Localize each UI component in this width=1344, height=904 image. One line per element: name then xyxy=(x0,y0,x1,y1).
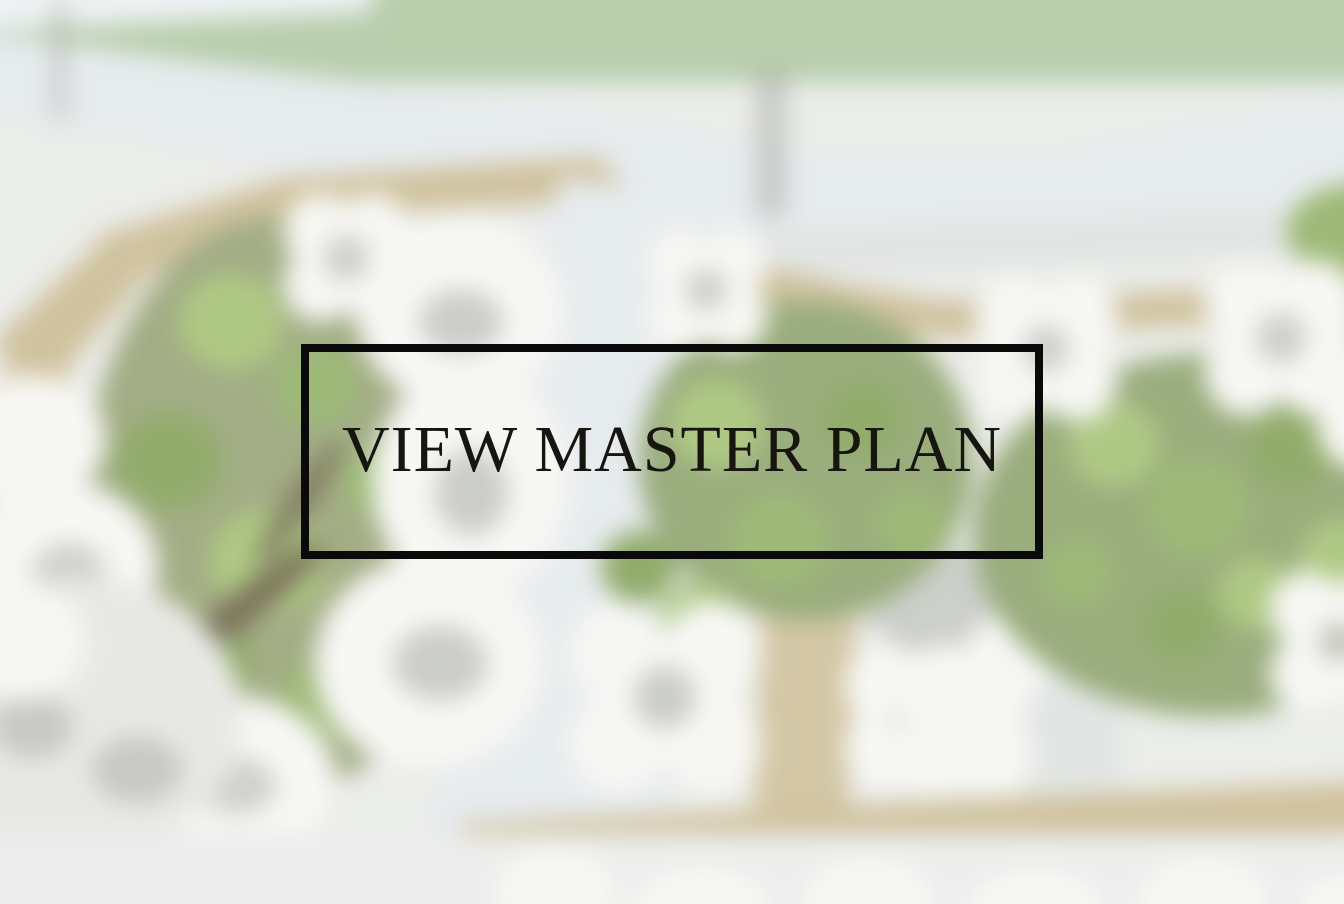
view-master-plan-button[interactable]: VIEW MASTER PLAN xyxy=(301,344,1043,559)
view-master-plan-label: VIEW MASTER PLAN xyxy=(342,417,1002,487)
hero-section: VIEW MASTER PLAN xyxy=(0,0,1344,904)
